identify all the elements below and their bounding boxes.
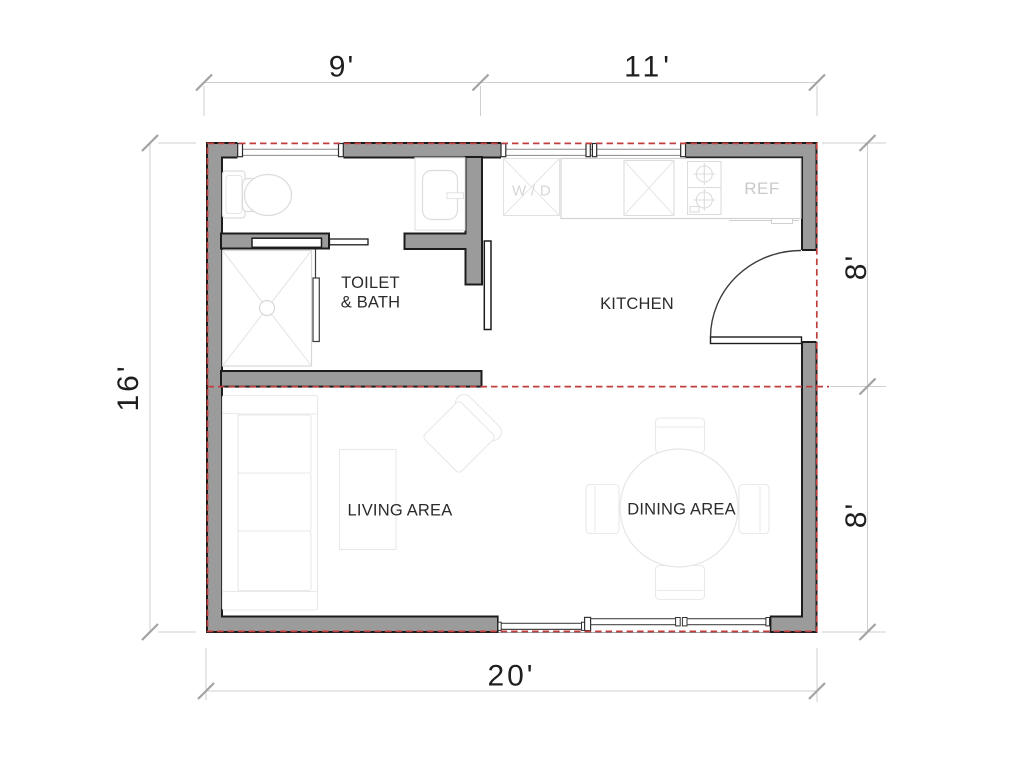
svg-text:DINING AREA: DINING AREA	[627, 500, 736, 518]
svg-text:W / D: W / D	[512, 182, 551, 199]
svg-text:KITCHEN: KITCHEN	[600, 295, 674, 313]
svg-text:11': 11'	[624, 51, 673, 84]
svg-text:20': 20'	[487, 660, 535, 693]
svg-text:8': 8'	[840, 254, 873, 280]
svg-text:8': 8'	[840, 502, 873, 528]
svg-text:9': 9'	[329, 51, 355, 84]
svg-text:REF: REF	[744, 179, 780, 198]
svg-text:16': 16'	[112, 363, 145, 411]
svg-text:TOILET: TOILET	[341, 274, 400, 292]
svg-text:LIVING AREA: LIVING AREA	[348, 501, 453, 519]
svg-text:& BATH: & BATH	[341, 293, 401, 311]
